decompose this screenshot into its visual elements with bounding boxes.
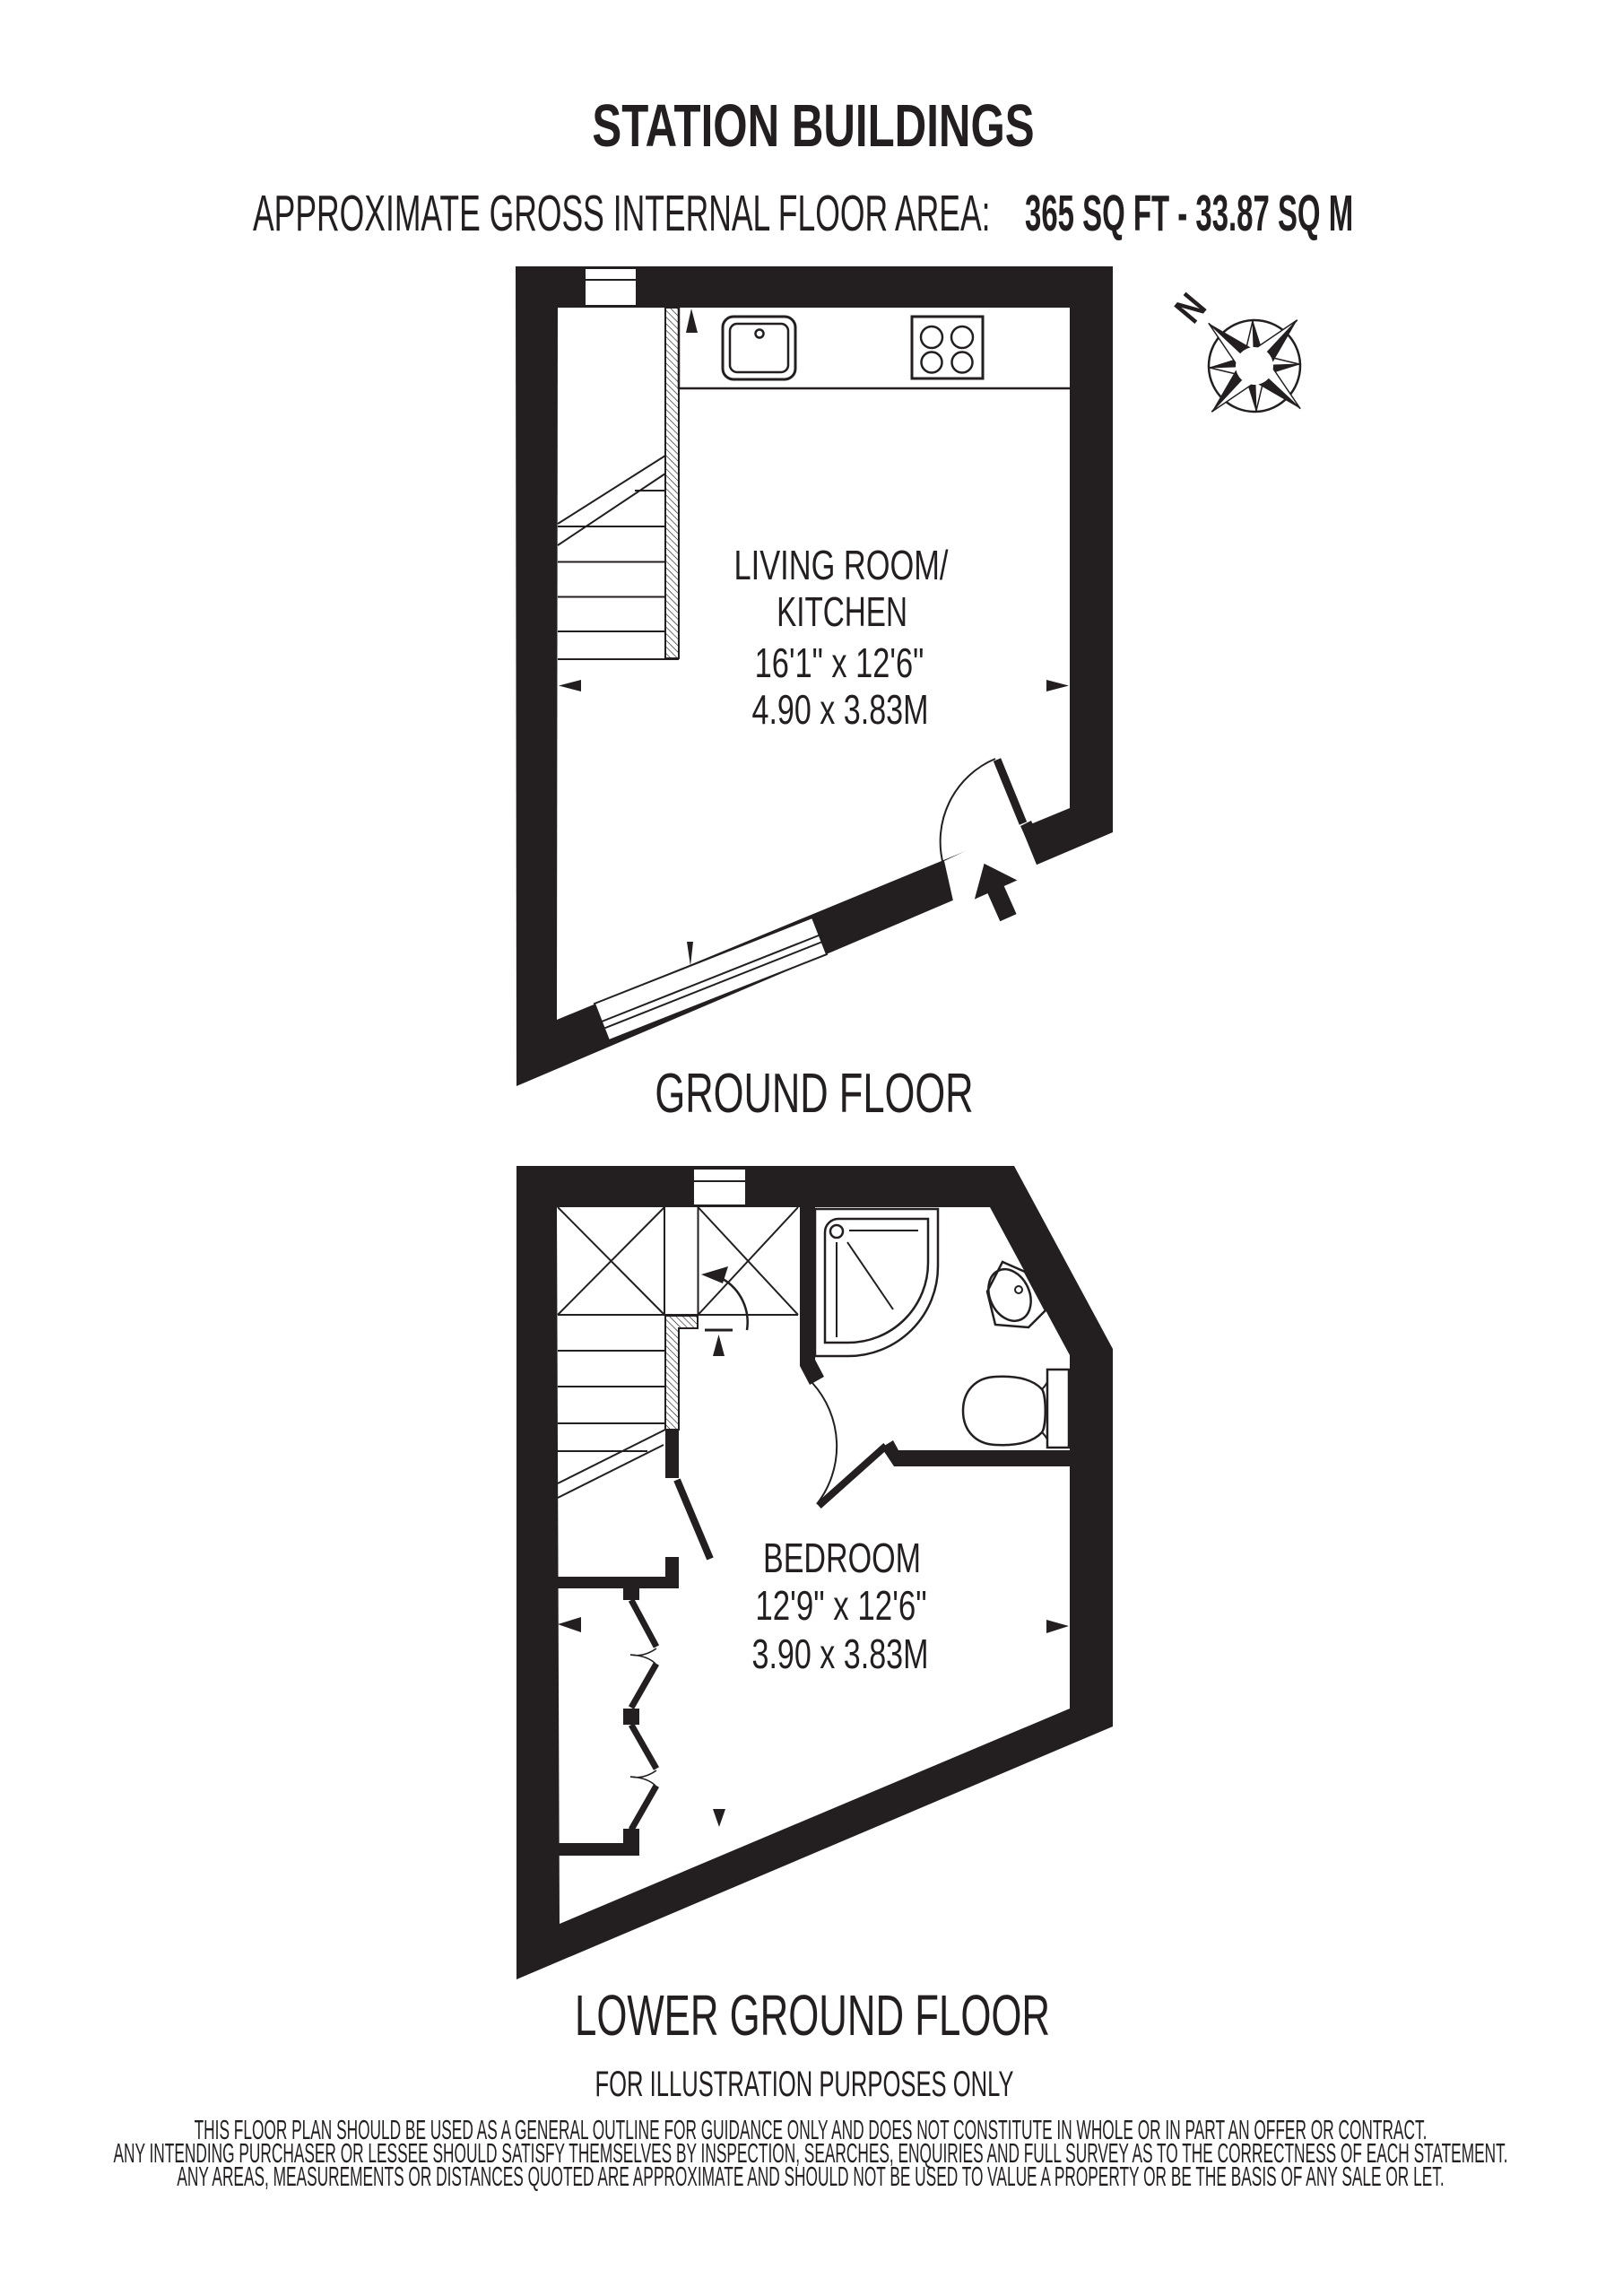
svg-text:365 SQ FT - 33.87 SQ M: 365 SQ FT - 33.87 SQ M xyxy=(1025,185,1353,242)
svg-text:12'9" x 12'6": 12'9" x 12'6" xyxy=(755,1582,926,1629)
svg-text:STATION BUILDINGS: STATION BUILDINGS xyxy=(592,93,1034,160)
svg-text:16'1" x 12'6": 16'1" x 12'6" xyxy=(755,639,924,686)
svg-text:GROUND FLOOR: GROUND FLOOR xyxy=(655,1062,973,1125)
svg-text:4.90 x 3.83M: 4.90 x 3.83M xyxy=(752,686,929,733)
svg-text:BEDROOM: BEDROOM xyxy=(763,1535,921,1581)
svg-text:LIVING ROOM/: LIVING ROOM/ xyxy=(734,542,949,588)
svg-text:FOR ILLUSTRATION PURPOSES ONLY: FOR ILLUSTRATION PURPOSES ONLY xyxy=(595,2065,1013,2104)
svg-text:APPROXIMATE GROSS INTERNAL FLO: APPROXIMATE GROSS INTERNAL FLOOR AREA: xyxy=(253,186,991,243)
svg-text:ANY AREAS, MEASUREMENTS OR DIS: ANY AREAS, MEASUREMENTS OR DISTANCES QUO… xyxy=(177,2162,1444,2192)
svg-text:KITCHEN: KITCHEN xyxy=(777,587,907,635)
svg-text:3.90 x 3.83M: 3.90 x 3.83M xyxy=(752,1631,929,1677)
svg-text:LOWER GROUND FLOOR: LOWER GROUND FLOOR xyxy=(575,1983,1050,2048)
